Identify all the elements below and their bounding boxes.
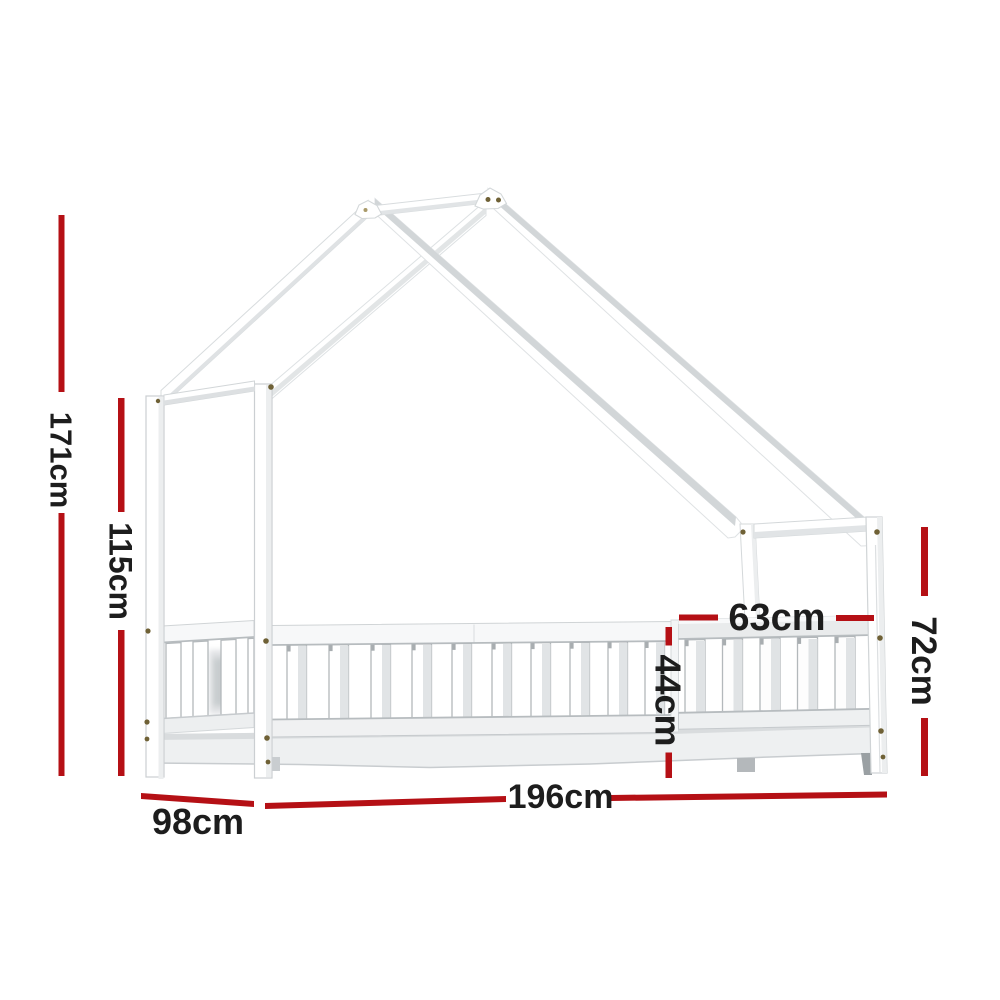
svg-text:98cm: 98cm (152, 801, 244, 842)
svg-text:196cm: 196cm (508, 778, 614, 816)
svg-text:115cm: 115cm (102, 522, 138, 620)
svg-text:171cm: 171cm (43, 412, 78, 509)
svg-text:63cm: 63cm (728, 597, 825, 639)
svg-text:72cm: 72cm (904, 616, 943, 706)
svg-text:44cm: 44cm (648, 654, 689, 746)
